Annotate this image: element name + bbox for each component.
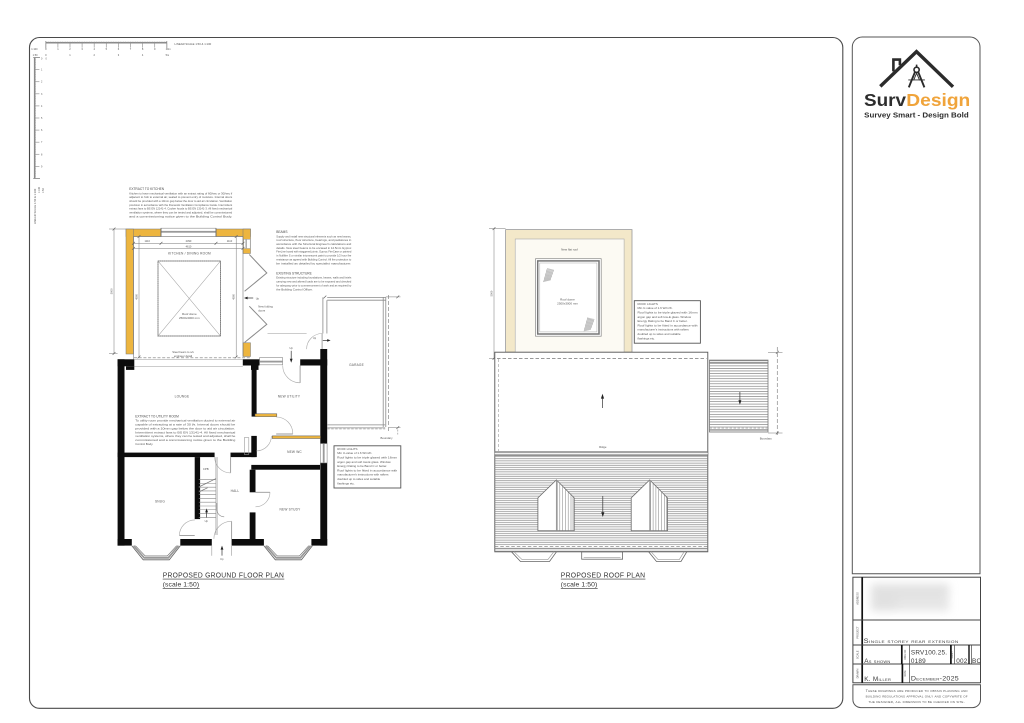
svg-text:SNUG: SNUG bbox=[155, 500, 165, 504]
svg-text:NEW STUDY: NEW STUDY bbox=[280, 508, 302, 512]
svg-text:1:100: 1:100 bbox=[38, 186, 41, 193]
svg-text:SRV100.25.: SRV100.25. bbox=[911, 649, 947, 656]
svg-text:and a commissioning notice giv: and a commissioning notice given to the … bbox=[129, 214, 232, 218]
svg-text:December-2025: December-2025 bbox=[911, 676, 959, 683]
svg-text:K. Miller: K. Miller bbox=[864, 676, 891, 683]
svg-text:1:50: 1:50 bbox=[42, 188, 45, 193]
svg-text:LOUNGE: LOUNGE bbox=[175, 394, 190, 398]
svg-text:Control Body.: Control Body. bbox=[135, 442, 153, 446]
svg-text:Design: Design bbox=[906, 90, 970, 110]
svg-text:4610: 4610 bbox=[186, 244, 192, 248]
svg-text:These drawings are produced to: These drawings are produced to obtain pl… bbox=[866, 688, 969, 693]
svg-text:Boundary: Boundary bbox=[760, 436, 773, 440]
svg-text:0189: 0189 bbox=[911, 658, 926, 665]
svg-text:10m: 10m bbox=[166, 47, 171, 51]
svg-text:doors: doors bbox=[258, 309, 266, 313]
svg-text:SCALE: SCALE bbox=[856, 650, 860, 659]
svg-text:Up: Up bbox=[205, 519, 209, 523]
svg-text:002: 002 bbox=[956, 658, 968, 665]
svg-text:(scale 1:50): (scale 1:50) bbox=[163, 582, 200, 589]
svg-text:NEW WC: NEW WC bbox=[287, 450, 302, 454]
svg-text:flashings etc.: flashings etc. bbox=[638, 336, 656, 340]
svg-text:DRAWN: DRAWN bbox=[856, 669, 860, 679]
svg-text:PROJECT: PROJECT bbox=[856, 626, 860, 639]
svg-text:KITCHEN / DINING ROOM: KITCHEN / DINING ROOM bbox=[168, 252, 211, 256]
svg-text:1:50: 1:50 bbox=[33, 54, 38, 57]
svg-text:be installed as detailed by sp: be installed as detailed by specialist m… bbox=[276, 261, 351, 265]
svg-text:PROPOSED ROOF PLAN: PROPOSED ROOF PLAN bbox=[561, 570, 646, 579]
svg-text:As shown: As shown bbox=[864, 658, 890, 665]
svg-text:ADDRESS: ADDRESS bbox=[856, 592, 860, 605]
svg-text:engineer detail: engineer detail bbox=[174, 354, 193, 358]
svg-text:1110: 1110 bbox=[145, 239, 151, 243]
svg-text:the Building Control Officer.: the Building Control Officer. bbox=[276, 287, 313, 291]
svg-text:SHEET: SHEET bbox=[952, 650, 954, 658]
svg-text:building regulations approval: building regulations approval only and c… bbox=[866, 694, 968, 699]
svg-text:2500x3000 mm: 2500x3000 mm bbox=[557, 301, 578, 305]
svg-text:Boundary: Boundary bbox=[381, 436, 394, 440]
svg-text:LINEAR SCALE 1:50 & 1:100: LINEAR SCALE 1:50 & 1:100 bbox=[33, 188, 37, 224]
svg-text:Single storey rear extension: Single storey rear extension bbox=[864, 638, 959, 645]
svg-text:1110: 1110 bbox=[227, 239, 233, 243]
svg-text:the designer, all dimension to: the designer, all dimension to be checke… bbox=[869, 699, 965, 704]
svg-text:GARAGE: GARAGE bbox=[349, 363, 364, 367]
svg-text:Survey Smart - Design Bold: Survey Smart - Design Bold bbox=[864, 111, 969, 120]
svg-text:2390: 2390 bbox=[186, 239, 192, 243]
svg-text:(scale 1:50): (scale 1:50) bbox=[561, 582, 598, 589]
svg-text:LINEAR SCALE 1:50 & 1:100: LINEAR SCALE 1:50 & 1:100 bbox=[175, 42, 212, 46]
svg-text:5000: 5000 bbox=[489, 290, 493, 296]
svg-text:New flat roof: New flat roof bbox=[561, 247, 578, 251]
svg-text:Ridge: Ridge bbox=[599, 445, 607, 449]
svg-text:PROPOSED GROUND FLOOR PLAN: PROPOSED GROUND FLOOR PLAN bbox=[163, 570, 285, 579]
svg-text:flashings etc.: flashings etc. bbox=[337, 481, 355, 485]
svg-text:4560: 4560 bbox=[134, 293, 138, 299]
svg-text:Up: Up bbox=[290, 346, 294, 350]
svg-text:5000: 5000 bbox=[109, 288, 113, 294]
svg-text:DWG NO: DWG NO bbox=[904, 650, 907, 660]
svg-text:Up: Up bbox=[256, 296, 260, 300]
svg-text:2500x3000 mm: 2500x3000 mm bbox=[179, 316, 200, 320]
svg-text:Surv: Surv bbox=[864, 90, 906, 110]
svg-text:5m: 5m bbox=[166, 53, 170, 57]
svg-text:4560: 4560 bbox=[232, 293, 236, 299]
svg-text:DATE: DATE bbox=[904, 670, 907, 677]
svg-text:NEW UTILITY: NEW UTILITY bbox=[278, 394, 301, 398]
svg-text:CPB: CPB bbox=[203, 467, 209, 471]
svg-text:BC: BC bbox=[972, 658, 981, 665]
svg-text:1:100: 1:100 bbox=[31, 48, 38, 51]
svg-text:Up: Up bbox=[220, 557, 224, 561]
svg-text:HALL: HALL bbox=[231, 489, 240, 493]
